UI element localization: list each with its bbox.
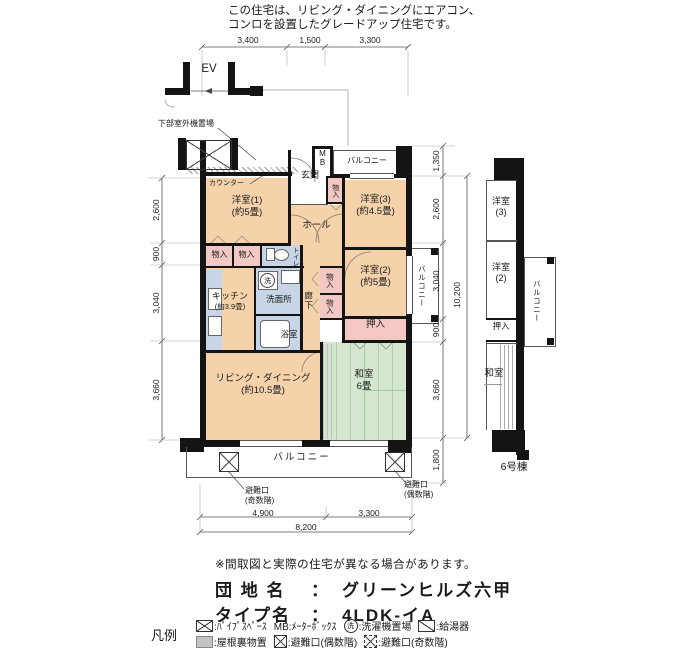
senmenjo-label: 洗面所 <box>256 294 302 305</box>
header-note-line2: コンロを設置したグレードアップ住宅です。 <box>228 18 480 32</box>
dim-right-4: 900 <box>431 312 441 348</box>
legend-pipe-space: :ﾊﾟｲﾌﾟｽﾍﾟｰｽ <box>196 618 267 633</box>
boiler-icon <box>418 620 435 632</box>
dim-right-1: 1,350 <box>431 143 441 179</box>
window-living <box>240 440 302 447</box>
section-balcony-corner <box>547 257 554 264</box>
yoshitsu1-size: (約5畳) <box>232 207 263 219</box>
balcony-right-label: バルコニー <box>417 255 426 317</box>
attic-label: :屋根裏物置 <box>214 634 267 649</box>
yoshitsu1-name: 洋室(1) <box>232 195 263 207</box>
outer-wall-top <box>200 172 292 176</box>
kitchen-name: キッチン <box>212 291 248 302</box>
wall-ld-top <box>200 350 322 353</box>
dim-left-3: 3,040 <box>151 285 161 321</box>
wall-senmenjo-bath <box>256 314 302 316</box>
section-div <box>486 240 517 242</box>
yoshitsu1-label: 洋室(1) (約5畳) <box>206 195 288 219</box>
closet-col2-label: 物入 <box>325 295 334 318</box>
ev-label: EV <box>196 62 222 76</box>
balcony-bottom-rail <box>186 477 412 478</box>
balcony-bottom-rail <box>186 447 187 478</box>
washitsu-size: 6畳 <box>357 381 372 393</box>
estate-label: 団 地 名 <box>215 576 299 601</box>
toilet-bowl <box>274 249 289 261</box>
balcony-right-corner <box>431 248 438 255</box>
legend-meter-box: MB:ﾒｰﾀｰﾎﾞｯｸｽ <box>274 618 337 633</box>
kitchen-size: (約3.9畳) <box>215 302 245 311</box>
vanity <box>281 270 300 284</box>
balcony-top-label: バルコニー <box>336 156 398 166</box>
escape-even-line1: 避難口 <box>404 480 433 490</box>
corridor-label: 廊下 <box>303 284 314 316</box>
escape-even-label: :避難口(偶数階) <box>288 634 357 649</box>
estate-row: 団 地 名 ： グリーンヒルズ六甲 <box>215 576 512 601</box>
legend-boiler: :給湯器 <box>418 618 469 633</box>
floorplan-canvas: この住宅は、リビング・ダイニングにエアコン、 コンロを設置したグレードアップ住宅… <box>0 0 700 650</box>
dim-left-2: 900 <box>151 236 161 272</box>
dim-left-1: 2,600 <box>151 192 161 228</box>
section-building-label: 6号棟 <box>490 461 538 474</box>
living-name: リビング・ダイニング <box>215 373 310 385</box>
escape-even-label: 避難口 (偶数階) <box>404 480 433 501</box>
room-hall-ext <box>320 250 342 266</box>
section-bottom-foot <box>517 450 529 460</box>
balcony-bottom-label: バルコニー <box>262 452 342 464</box>
ev-corridor-lines <box>165 90 348 146</box>
corner-block-bottomleft <box>180 438 204 452</box>
wall-closetcol-top <box>320 266 342 268</box>
escape-even-icon <box>274 635 287 648</box>
escape-odd-line2: (奇数階) <box>245 496 274 506</box>
section-y3-num: (3) <box>496 207 507 218</box>
oshiire-label: 押入 <box>345 319 406 331</box>
section-bottom-mass <box>492 430 525 452</box>
wash-symbol: 洗 <box>260 273 275 288</box>
dim-bottom-1: 4,900 <box>245 508 281 518</box>
header-note: この住宅は、リビング・ダイニングにエアコン、 コンロを設置したグレードアップ住宅… <box>228 4 480 32</box>
section-y3-label: 洋室 (3) <box>484 196 518 219</box>
wall-closet-div <box>260 245 262 266</box>
section-div <box>486 180 517 181</box>
hall-label: ホール <box>288 220 345 232</box>
balcony-bottom-rail <box>411 447 412 478</box>
yoshitsu3-label: 洋室(3) (約4.5畳) <box>345 194 406 218</box>
dim-right-5: 3,660 <box>431 372 441 408</box>
section-balcony-label: バルコニー <box>532 264 541 338</box>
section-washitsu-label: 和室 <box>478 368 510 380</box>
section-div <box>486 343 517 344</box>
section-y2-name: 洋室 <box>492 262 510 273</box>
attic-icon <box>196 636 213 648</box>
mb-b: B <box>320 159 325 168</box>
kitchen-label: キッチン (約3.9畳) <box>204 291 256 312</box>
legend-row-1: :ﾊﾟｲﾌﾟｽﾍﾟｰｽ MB:ﾒｰﾀｰﾎﾞｯｸｽ 洗 :洗濯機置場 :給湯器 <box>196 618 469 633</box>
living-size: (約10.5畳) <box>241 385 285 397</box>
legend-washer: 洗 :洗濯機置場 <box>344 618 412 633</box>
estate-name: グリーンヒルズ六甲 <box>342 576 512 601</box>
yoshitsu3-name: 洋室(3) <box>360 194 391 206</box>
window-yoshitsu2 <box>406 256 413 314</box>
pipe-space-label: :ﾊﾟｲﾌﾟｽﾍﾟｰｽ <box>214 618 267 633</box>
outdoor-unit-box <box>186 140 232 170</box>
closet-col1-label: 物入 <box>325 269 334 292</box>
counter-label: カウンター <box>209 180 244 189</box>
section-y3-name: 洋室 <box>492 196 510 207</box>
estate-colon: ： <box>311 576 330 601</box>
dim-left-4: 3,660 <box>151 372 161 408</box>
dim-right-6: 1,800 <box>431 442 441 478</box>
pipe-space-icon <box>196 620 213 632</box>
kitchen-stove <box>208 316 222 336</box>
living-label: リビング・ダイニング (約10.5畳) <box>206 373 320 397</box>
yoshitsu2-size: (約5畳) <box>360 277 391 289</box>
outdoor-box-wall <box>178 138 186 170</box>
genkan-label: 玄関 <box>292 170 328 181</box>
legend-attic: :屋根裏物置 <box>196 634 267 649</box>
section-balcony-corner <box>547 338 554 345</box>
washitsu-name: 和室 <box>354 369 373 381</box>
window-yoshitsu3 <box>350 173 394 179</box>
yoshitsu2-name: 洋室(2) <box>360 265 391 277</box>
genkan-step-line <box>291 204 328 205</box>
wall-y3-bottom <box>342 247 406 250</box>
boiler-label: :給湯器 <box>436 618 469 633</box>
dim-right-3: 3,040 <box>431 263 441 299</box>
section-top-block <box>494 158 518 180</box>
outdoor-unit-label: 下部室外機置場 <box>158 119 214 129</box>
mb-label: M B <box>315 150 330 168</box>
escape-odd-label: :避難口(奇数階) <box>378 634 447 649</box>
ev-wall <box>250 86 263 96</box>
dim-bottom-total: 8,200 <box>288 522 324 532</box>
ev-door-arrow <box>205 88 212 94</box>
washer-icon: 洗 <box>344 619 358 633</box>
legend-title: 凡例 <box>151 625 177 644</box>
escape-even-line2: (偶数階) <box>404 490 433 500</box>
dim-top-3: 3,300 <box>352 35 388 45</box>
escape-odd-label: 避難口 (奇数階) <box>245 486 274 507</box>
yoshitsu3-size: (約4.5畳) <box>356 206 395 218</box>
section-attic-stripes <box>500 345 516 429</box>
legend-row-2: :屋根裏物置 :避難口(偶数階) :避難口(奇数階) <box>196 634 448 649</box>
toilet-label: トイレ <box>290 244 298 270</box>
closet-genkan-label: 物入 <box>330 179 339 203</box>
genkan-wall <box>288 150 291 210</box>
section-oshiire-label: 押入 <box>486 321 516 332</box>
dim-right-2: 2,600 <box>431 191 441 227</box>
wall-genkan-closet <box>326 176 344 178</box>
ev-wall <box>183 62 190 95</box>
washitsu-label: 和室 6畳 <box>322 369 406 393</box>
meter-box-label: MB:ﾒｰﾀｰﾎﾞｯｸｽ <box>274 618 337 633</box>
wall-oshiire-bottom <box>342 340 406 343</box>
escape-odd-icon <box>364 635 377 648</box>
dim-top-2: 1,500 <box>292 35 328 45</box>
wall-y1-bottom <box>200 243 291 246</box>
legend-escape-even: :避難口(偶数階) <box>274 634 357 649</box>
washer-label: :洗濯機置場 <box>359 618 412 633</box>
header-note-line1: この住宅は、リビング・ダイニングにエアコン、 <box>228 4 480 18</box>
escape-odd-line1: 避難口 <box>245 486 274 496</box>
dim-right-total: 10,200 <box>452 274 462 316</box>
window-washitsu <box>330 440 388 447</box>
bath-label: 浴室 <box>274 329 304 340</box>
yoshitsu2-label: 洋室(2) (約5畳) <box>345 265 406 289</box>
dim-bottom-2: 3,300 <box>351 508 387 518</box>
section-y2-num: (2) <box>496 273 507 284</box>
dim-top-1: 3,400 <box>230 35 266 45</box>
escape-hatch-even <box>385 452 405 472</box>
escape-hatch-odd <box>219 452 239 472</box>
closet1-label: 物入 <box>206 250 233 260</box>
footer-note: ※間取図と実際の住宅が異なる場合があります。 <box>215 556 476 572</box>
wall-closetcol-bottom <box>320 318 342 320</box>
section-y2-label: 洋室 (2) <box>484 262 518 285</box>
section-washitsu-underline <box>484 384 502 385</box>
closet2-label: 物入 <box>233 250 260 260</box>
legend-escape-odd: :避難口(奇数階) <box>364 634 447 649</box>
